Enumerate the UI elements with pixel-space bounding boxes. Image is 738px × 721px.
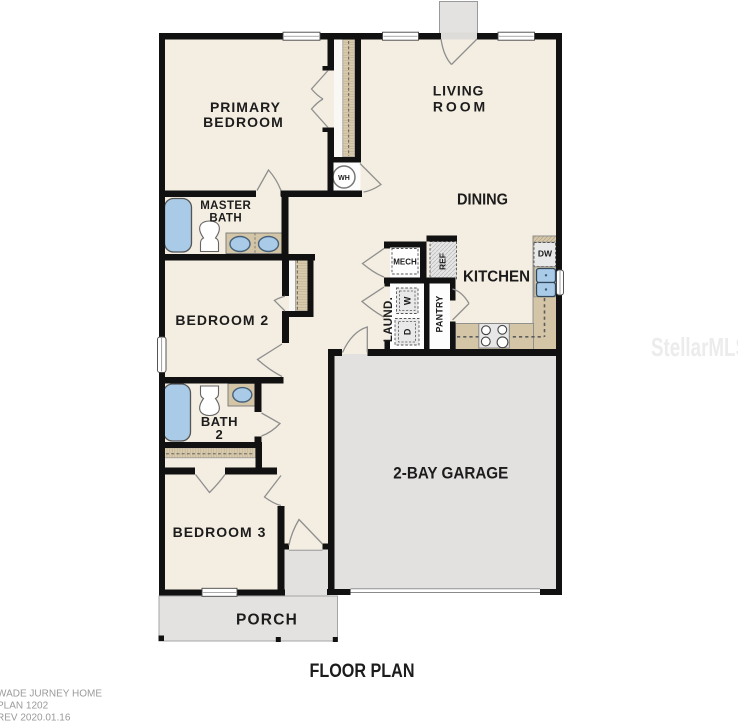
svg-text:FLOOR PLAN: FLOOR PLAN [310,661,415,682]
svg-text:ROOM: ROOM [433,99,488,115]
svg-text:2-BAY GARAGE: 2-BAY GARAGE [393,465,508,483]
svg-text:DW: DW [538,249,553,259]
svg-text:BEDROOM 3: BEDROOM 3 [173,524,267,540]
svg-text:MASTER: MASTER [200,200,251,212]
svg-text:BATH: BATH [209,213,242,225]
svg-text:WH: WH [338,175,350,182]
svg-text:D: D [403,328,413,335]
svg-text:REF: REF [438,253,448,270]
svg-text:2: 2 [216,427,224,442]
svg-text:WADE JURNEY HOME: WADE JURNEY HOME [0,689,102,700]
svg-text:KITCHEN: KITCHEN [463,269,530,286]
svg-text:PLAN 1202: PLAN 1202 [0,701,49,712]
svg-text:MECH: MECH [393,258,417,267]
svg-text:BEDROOM 2: BEDROOM 2 [175,312,269,328]
svg-text:PORCH: PORCH [236,612,298,629]
svg-text:PANTRY: PANTRY [435,296,445,333]
svg-text:REV 2020.01.16: REV 2020.01.16 [0,713,71,721]
svg-text:LAUND.: LAUND. [383,297,395,342]
svg-text:LIVING: LIVING [433,83,484,99]
svg-text:W: W [403,296,413,305]
svg-text:BEDROOM: BEDROOM [203,114,284,130]
svg-text:PRIMARY: PRIMARY [210,99,281,115]
svg-text:StellarMLS: StellarMLS [651,332,738,362]
svg-text:DINING: DINING [457,192,508,209]
